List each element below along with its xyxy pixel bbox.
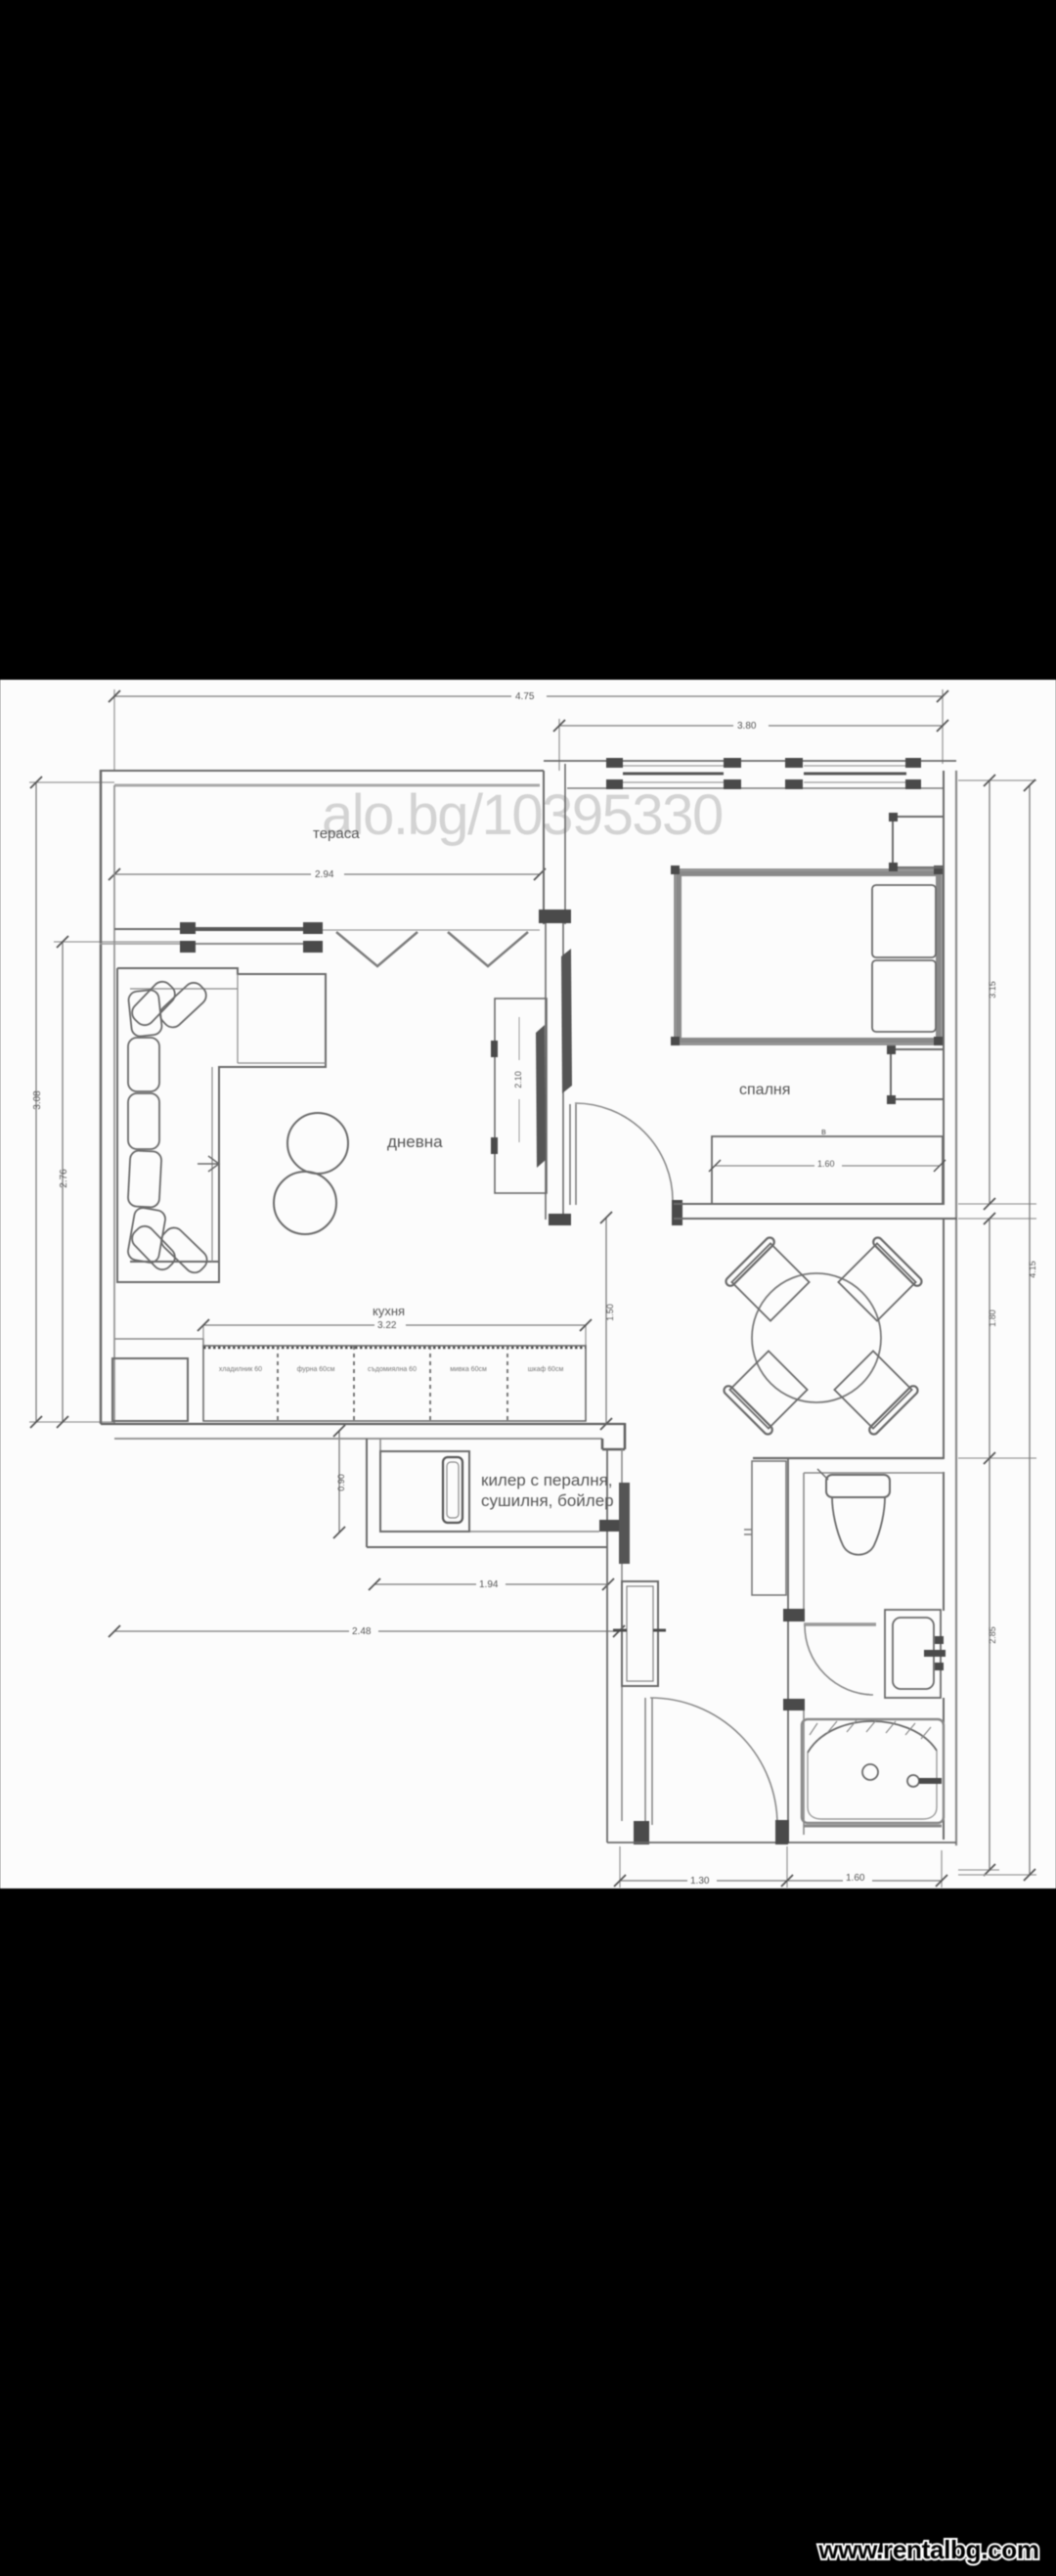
- svg-text:шкаф 60см: шкаф 60см: [528, 1366, 564, 1373]
- svg-text:в: в: [821, 1127, 826, 1136]
- svg-text:2.10: 2.10: [513, 1071, 523, 1088]
- svg-text:3.80: 3.80: [737, 721, 757, 732]
- svg-text:1.60: 1.60: [846, 1873, 865, 1884]
- svg-text:мивка 60см: мивка 60см: [450, 1366, 487, 1373]
- svg-text:хладилник 60: хладилник 60: [219, 1366, 262, 1373]
- svg-text:0.90: 0.90: [336, 1474, 346, 1491]
- svg-text:дневна: дневна: [387, 1133, 443, 1151]
- svg-text:www.rentalbg.com: www.rentalbg.com: [817, 2535, 1038, 2564]
- svg-text:2.76: 2.76: [59, 1169, 69, 1188]
- svg-text:1.30: 1.30: [690, 1876, 710, 1887]
- svg-text:1.94: 1.94: [479, 1579, 499, 1590]
- svg-text:спалня: спалня: [739, 1082, 790, 1098]
- svg-text:съдомиялна 60: съдомиялна 60: [368, 1366, 417, 1373]
- svg-text:4.15: 4.15: [1028, 1261, 1037, 1278]
- svg-text:1.80: 1.80: [988, 1310, 997, 1327]
- svg-text:2.94: 2.94: [315, 869, 334, 880]
- svg-text:alo.bg/10395330: alo.bg/10395330: [322, 783, 723, 847]
- svg-text:фурна 60см: фурна 60см: [297, 1366, 335, 1373]
- svg-text:1.60: 1.60: [817, 1159, 835, 1169]
- svg-text:кухня: кухня: [373, 1304, 405, 1318]
- svg-text:тераса: тераса: [313, 825, 360, 842]
- svg-text:3.08: 3.08: [32, 1090, 43, 1110]
- svg-text:килер с пералня,: килер с пералня,: [481, 1471, 613, 1489]
- svg-text:3.15: 3.15: [988, 981, 997, 999]
- svg-text:2.85: 2.85: [988, 1626, 997, 1644]
- svg-text:3.22: 3.22: [377, 1320, 397, 1331]
- svg-text:1.50: 1.50: [605, 1304, 615, 1321]
- svg-text:2.48: 2.48: [352, 1626, 372, 1637]
- svg-text:4.75: 4.75: [515, 691, 535, 702]
- svg-text:сушилня, бойлер: сушилня, бойлер: [481, 1491, 614, 1510]
